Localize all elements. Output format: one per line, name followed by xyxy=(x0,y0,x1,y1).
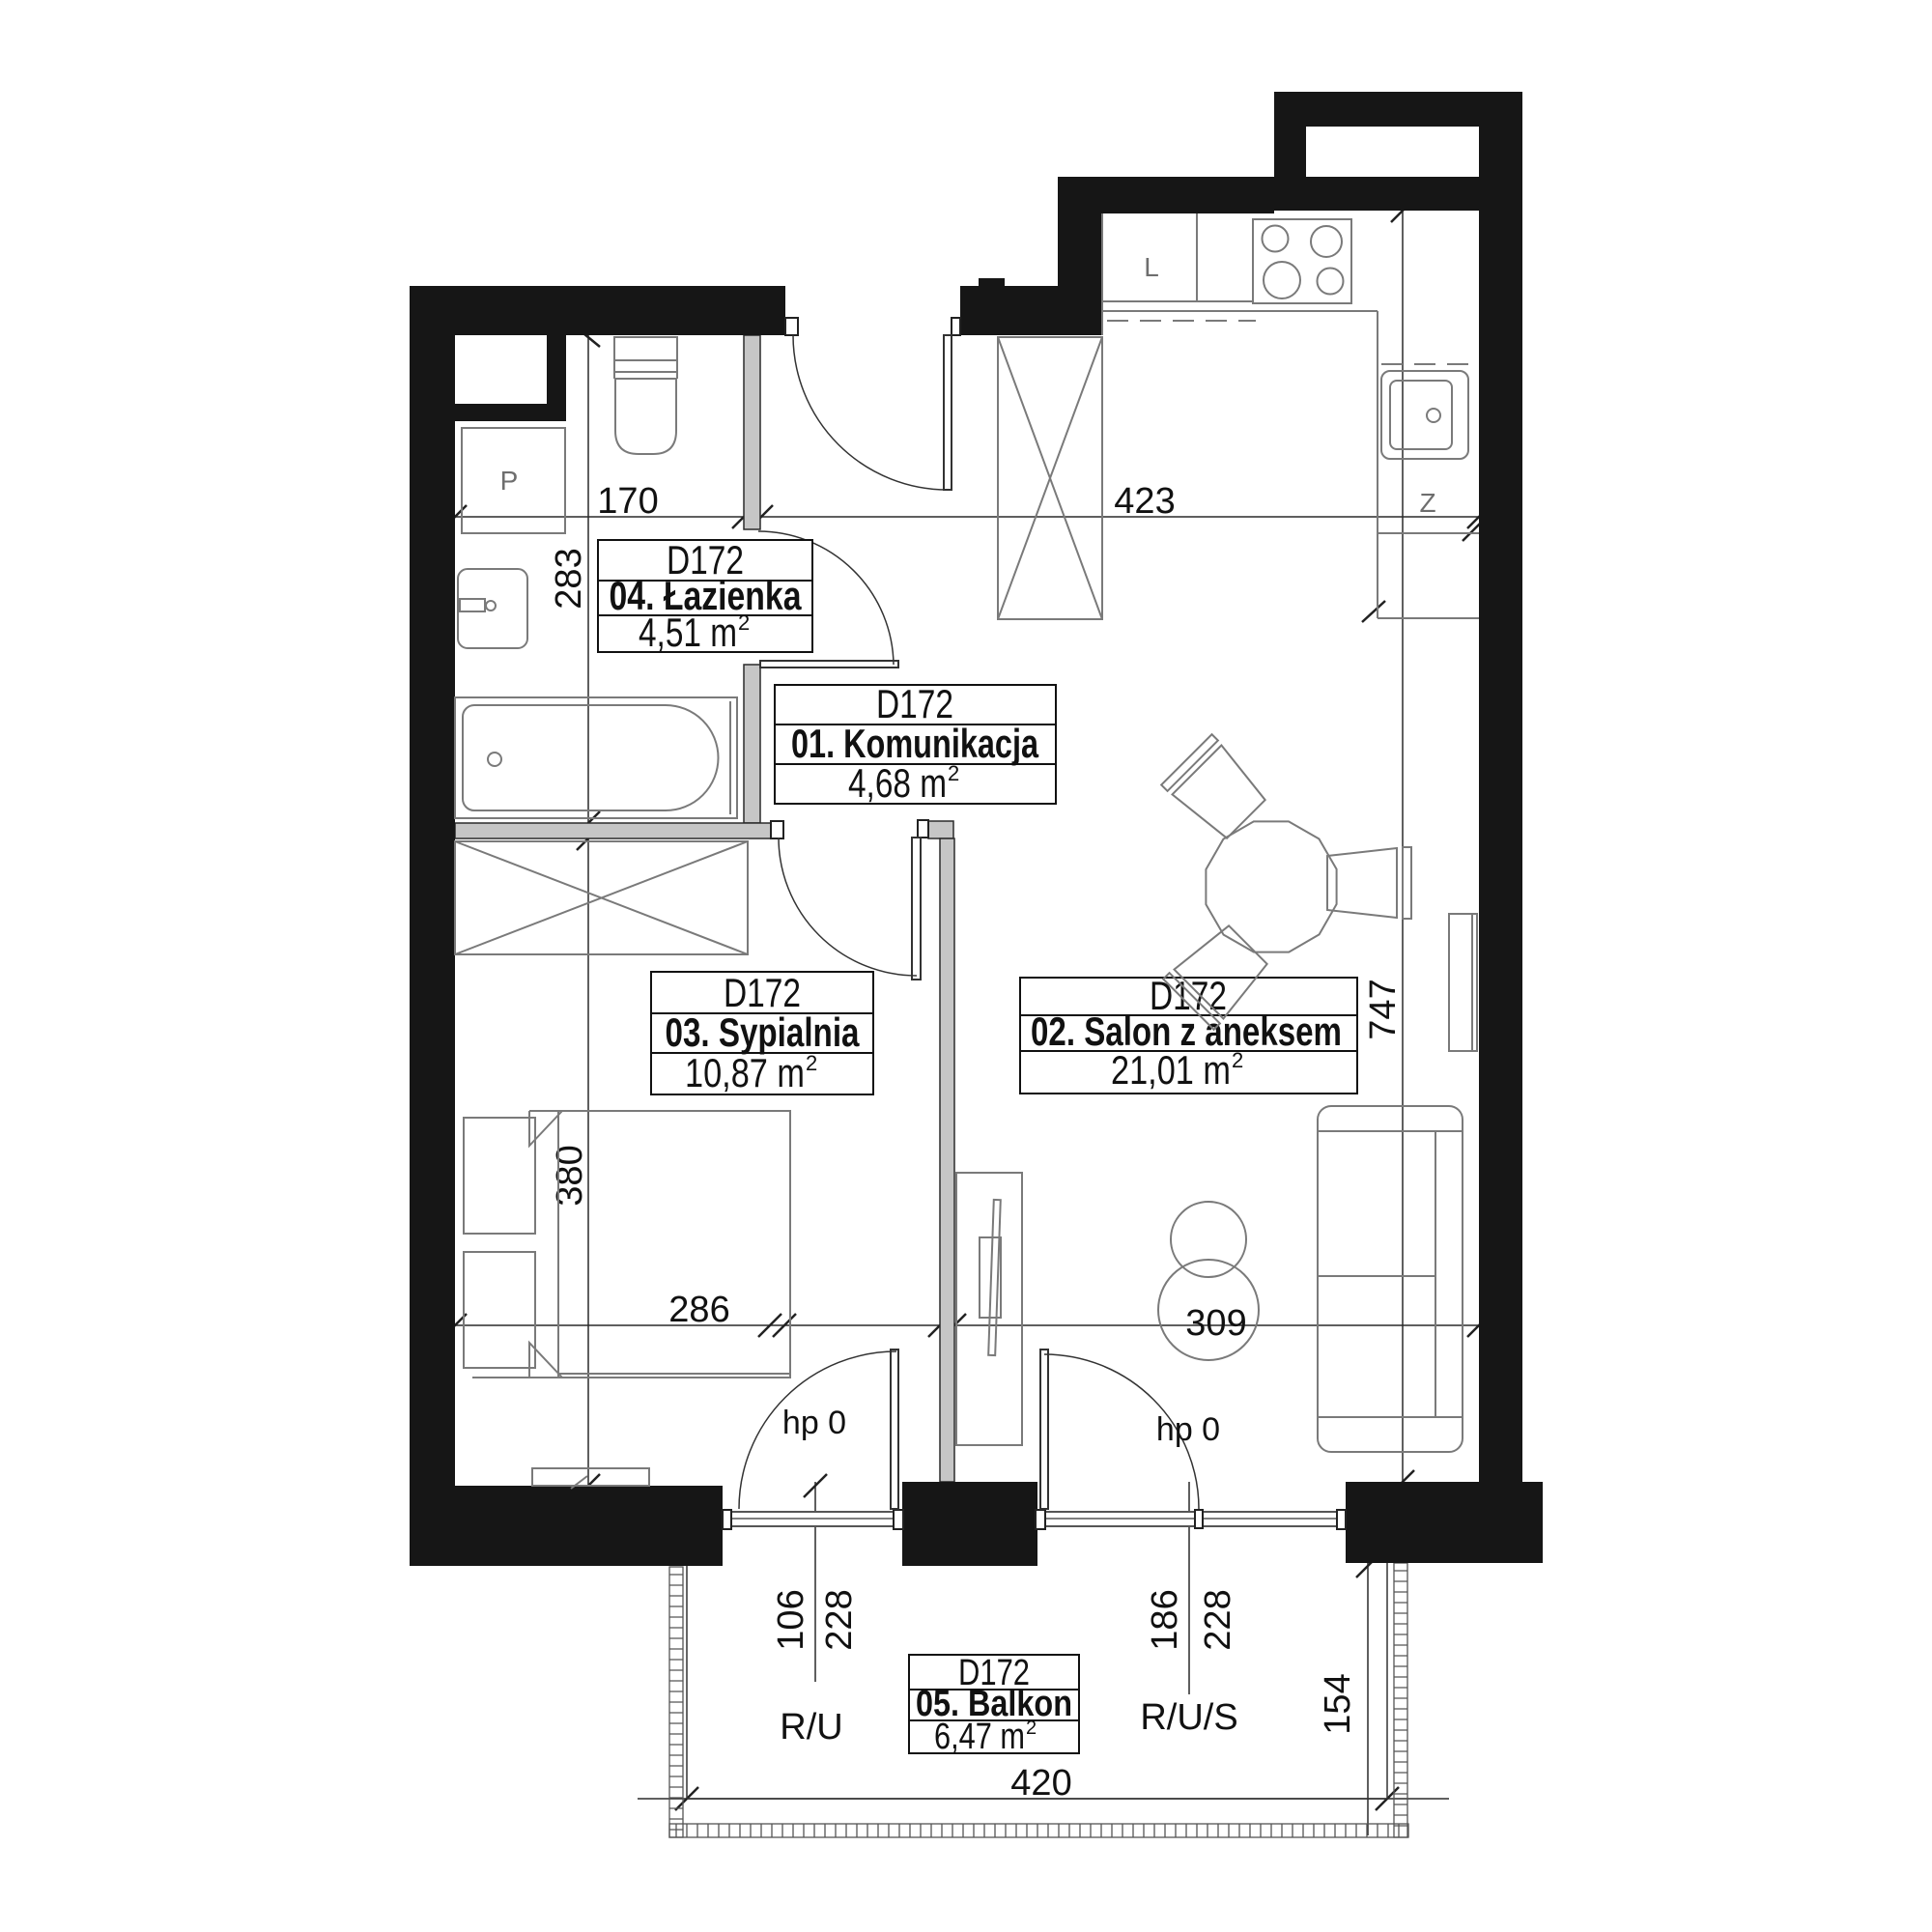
svg-text:747: 747 xyxy=(1363,979,1404,1039)
svg-text:10,87 m: 10,87 m xyxy=(685,1050,805,1095)
svg-text:01. Komunikacja: 01. Komunikacja xyxy=(791,721,1038,766)
svg-text:D172: D172 xyxy=(876,681,953,726)
svg-text:4,51 m: 4,51 m xyxy=(639,610,737,655)
svg-text:4,68 m: 4,68 m xyxy=(848,760,947,806)
svg-text:L: L xyxy=(1144,252,1159,282)
svg-text:2: 2 xyxy=(806,1051,817,1075)
svg-text:283: 283 xyxy=(549,548,589,609)
svg-text:P: P xyxy=(500,466,519,496)
svg-text:Z: Z xyxy=(1419,488,1435,518)
svg-text:186: 186 xyxy=(1145,1589,1185,1650)
svg-text:hp 0: hp 0 xyxy=(782,1405,846,1441)
svg-text:2: 2 xyxy=(948,761,959,785)
svg-text:R/U/S: R/U/S xyxy=(1140,1697,1237,1738)
svg-text:228: 228 xyxy=(1198,1589,1238,1650)
svg-text:380: 380 xyxy=(550,1145,590,1206)
svg-text:309: 309 xyxy=(1185,1303,1246,1344)
svg-text:154: 154 xyxy=(1318,1673,1358,1734)
svg-text:2: 2 xyxy=(738,611,750,635)
svg-text:03. Sypialnia: 03. Sypialnia xyxy=(666,1009,861,1055)
svg-text:D172: D172 xyxy=(724,970,801,1015)
svg-text:hp 0: hp 0 xyxy=(1156,1411,1220,1448)
svg-text:423: 423 xyxy=(1114,481,1175,522)
svg-text:2: 2 xyxy=(1232,1048,1243,1072)
svg-text:R/U: R/U xyxy=(780,1707,842,1747)
svg-text:228: 228 xyxy=(819,1589,860,1650)
svg-text:286: 286 xyxy=(668,1290,729,1330)
svg-text:170: 170 xyxy=(597,481,658,522)
svg-text:106: 106 xyxy=(771,1589,811,1650)
svg-text:420: 420 xyxy=(1010,1763,1071,1804)
svg-text:2: 2 xyxy=(1026,1718,1037,1739)
svg-text:6,47 m: 6,47 m xyxy=(934,1717,1025,1757)
svg-text:21,01 m: 21,01 m xyxy=(1111,1047,1231,1093)
